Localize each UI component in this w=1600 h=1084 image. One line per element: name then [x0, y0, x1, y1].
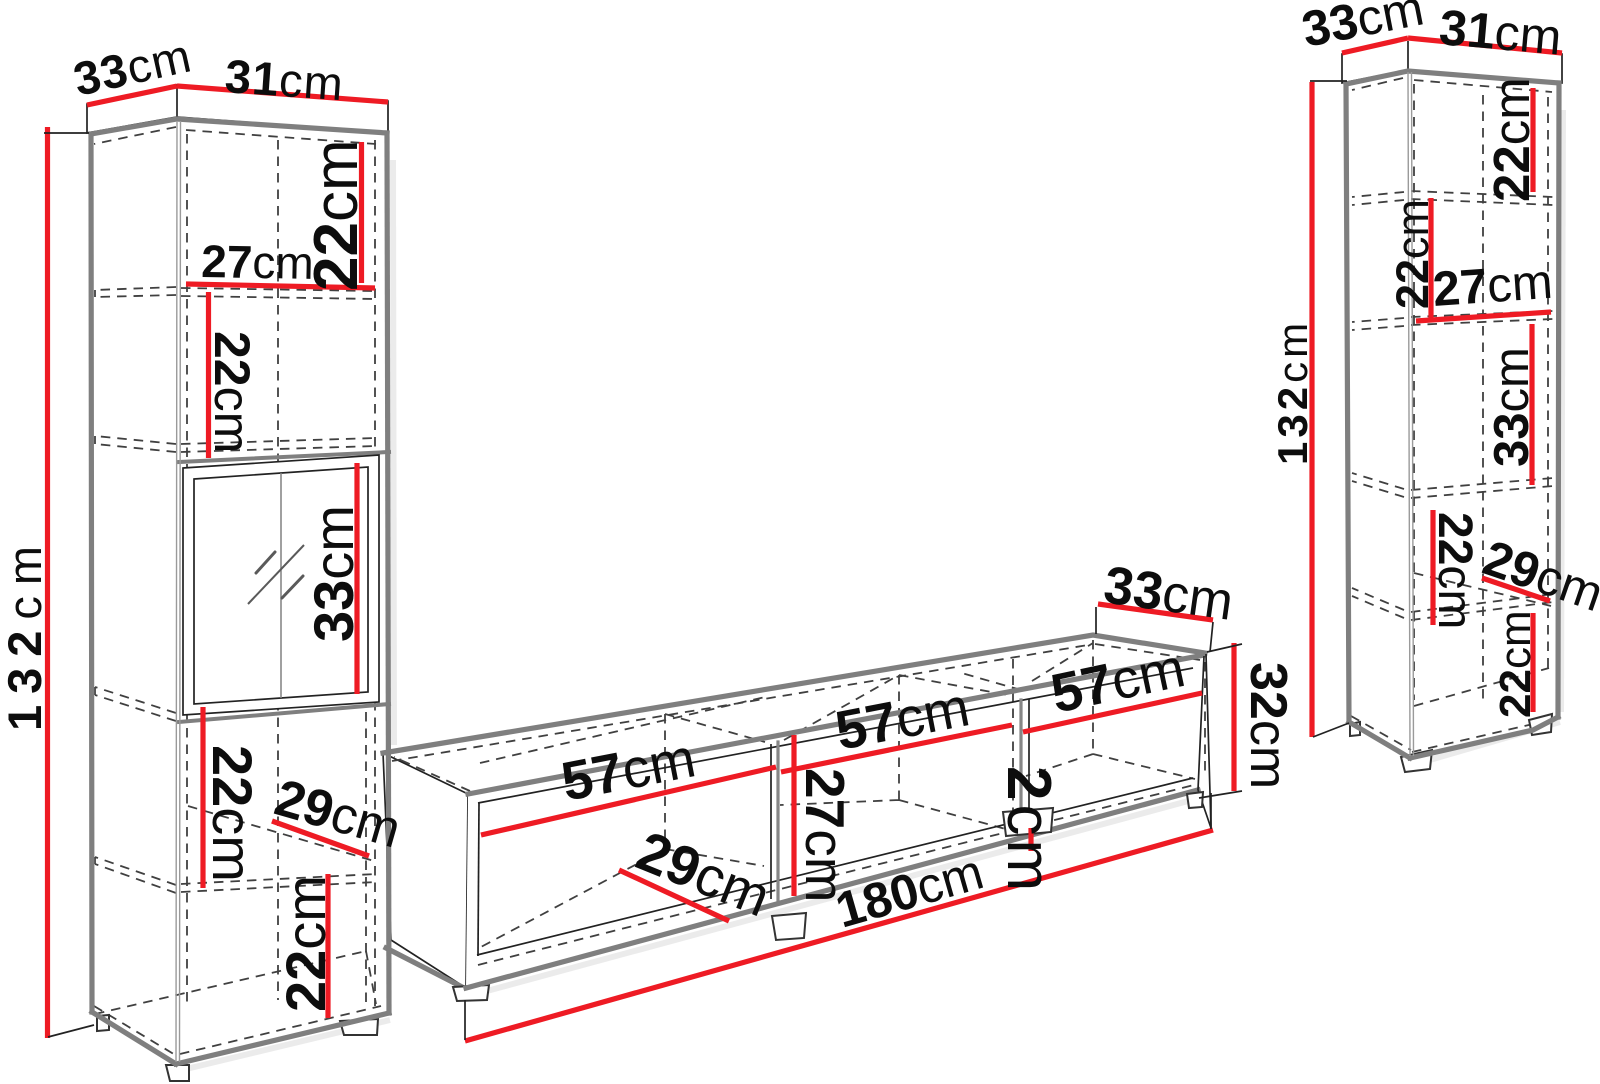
svg-text:32cm: 32cm [1239, 662, 1297, 789]
svg-text:2cm: 2cm [994, 766, 1063, 895]
svg-text:22cm: 22cm [1387, 199, 1438, 309]
svg-text:22cm: 22cm [1483, 77, 1540, 202]
svg-text:27cm: 27cm [201, 235, 314, 289]
svg-text:31cm: 31cm [223, 49, 345, 110]
svg-text:132cm: 132cm [0, 535, 51, 731]
svg-text:31cm: 31cm [1437, 0, 1564, 66]
svg-text:33cm: 33cm [1485, 347, 1539, 467]
svg-text:22cm: 22cm [201, 745, 264, 882]
svg-text:22cm: 22cm [274, 875, 337, 1012]
svg-text:22cm: 22cm [204, 331, 260, 453]
svg-text:27cm: 27cm [1431, 255, 1554, 317]
svg-text:22cm: 22cm [1491, 610, 1540, 718]
svg-text:33cm: 33cm [302, 505, 365, 642]
svg-text:132cm: 132cm [1269, 319, 1316, 465]
svg-text:22cm: 22cm [1428, 512, 1481, 629]
